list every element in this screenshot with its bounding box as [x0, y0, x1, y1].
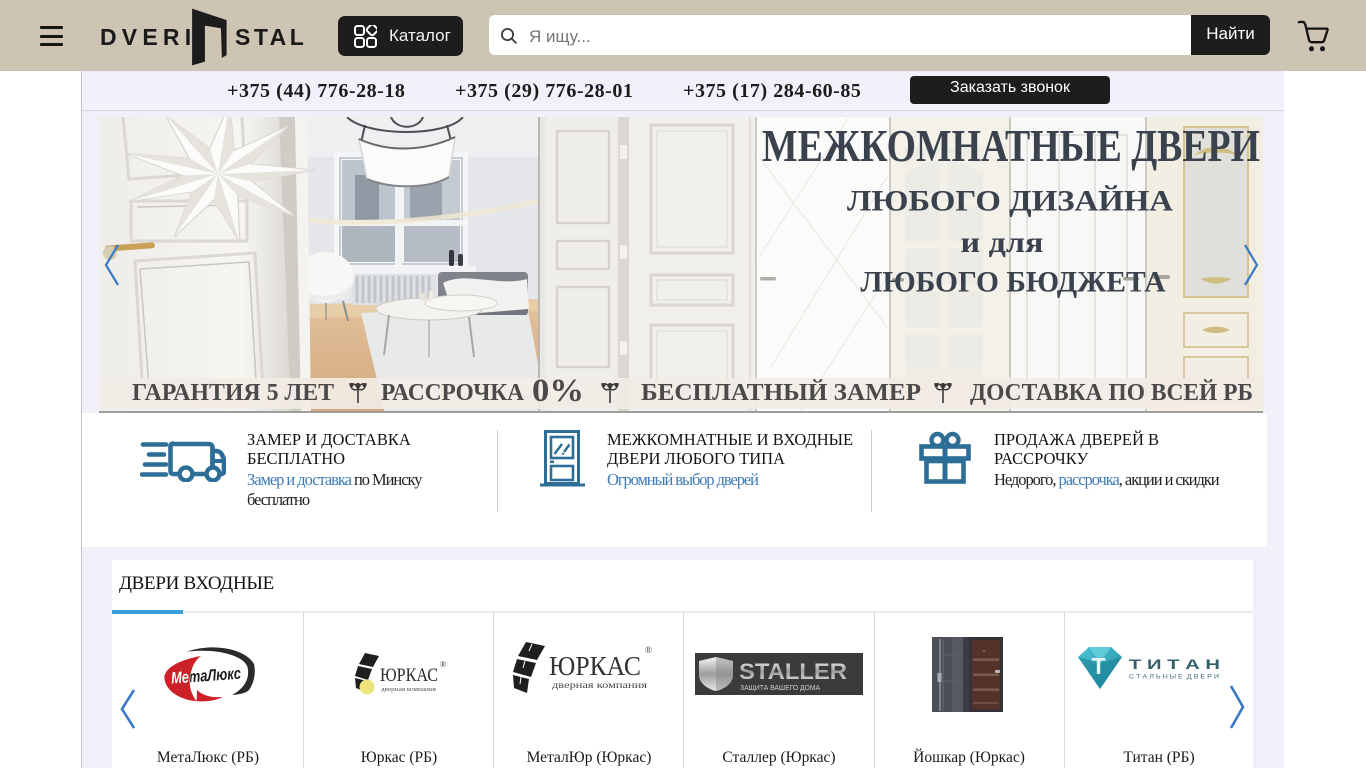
svg-text:®: ®	[645, 645, 652, 655]
svg-text:®: ®	[440, 660, 446, 669]
svg-text:и для: и для	[961, 226, 1044, 259]
svg-text:МЕЖКОМНАТНЫЕ ДВЕРИ: МЕЖКОМНАТНЫЕ ДВЕРИ	[762, 120, 1260, 171]
svg-text:ЛЮБОГО ДИЗАЙНА: ЛЮБОГО ДИЗАЙНА	[847, 185, 1173, 218]
svg-text:ЮРКАС: ЮРКАС	[549, 651, 641, 681]
svg-text:ЛЮБОГО БЮДЖЕТА: ЛЮБОГО БЮДЖЕТА	[861, 266, 1166, 299]
svg-text:дверная компания: дверная компания	[381, 686, 436, 693]
svg-text:С Т А Л Ь Н Ы Е Д В Е Р И: С Т А Л Ь Н Ы Е Д В Е Р И	[1129, 674, 1219, 681]
svg-text:ДОСТАВКА ПО ВСЕЙ РБ: ДОСТАВКА ПО ВСЕЙ РБ	[970, 380, 1253, 406]
svg-text:ЗАЩИТА ВАШЕГО ДОМА: ЗАЩИТА ВАШЕГО ДОМА	[740, 685, 820, 692]
svg-text:ГАРАНТИЯ 5 ЛЕТ: ГАРАНТИЯ 5 ЛЕТ	[132, 380, 334, 406]
svg-text:T: T	[1092, 653, 1106, 679]
svg-text:ЮРКАС: ЮРКАС	[380, 665, 438, 686]
svg-text:БЕСПЛАТНЫЙ ЗАМЕР: БЕСПЛАТНЫЙ ЗАМЕР	[641, 380, 921, 406]
svg-text:РАССРОЧКА: РАССРОЧКА	[381, 380, 525, 406]
svg-text:0%: 0%	[532, 373, 584, 409]
svg-text:дверная компания: дверная компания	[552, 680, 647, 690]
svg-text:Т И Т А Н: Т И Т А Н	[1129, 656, 1220, 672]
svg-text:STALLER: STALLER	[739, 659, 847, 684]
